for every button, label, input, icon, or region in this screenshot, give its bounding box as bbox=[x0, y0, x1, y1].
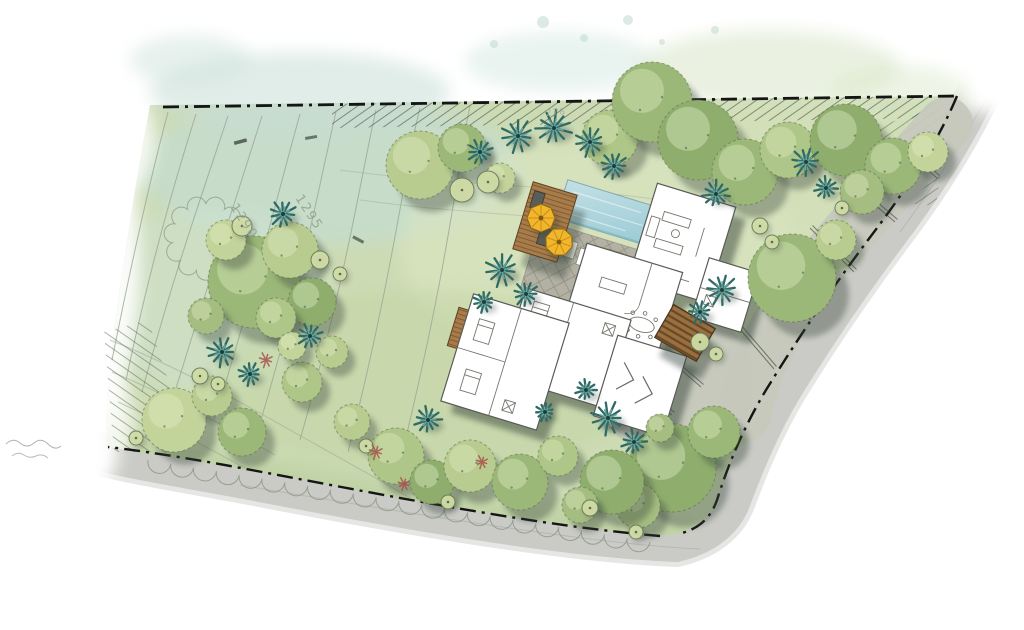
site-plan-canvas: 1290 1295 276 bbox=[0, 0, 1024, 630]
site-plan-drawing: 1290 1295 276 bbox=[0, 0, 1024, 630]
boundary-bearing-label: 276 bbox=[545, 107, 566, 119]
